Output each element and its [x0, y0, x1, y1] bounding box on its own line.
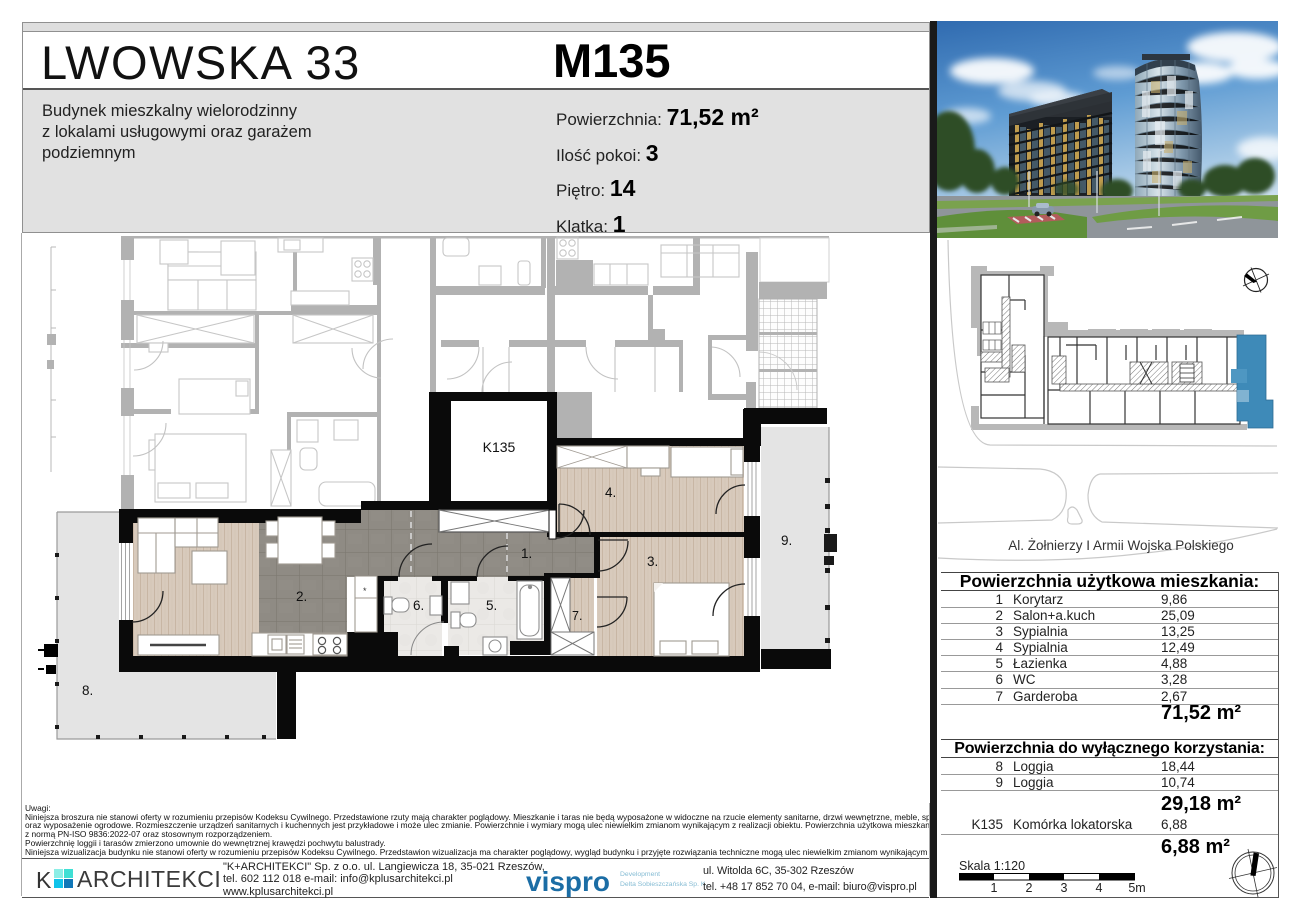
svg-text:3: 3 [1061, 881, 1068, 895]
svg-text:*: * [363, 586, 367, 596]
svg-text:5.: 5. [486, 598, 497, 613]
svg-text:2: 2 [1026, 881, 1033, 895]
svg-text:3.: 3. [647, 554, 658, 569]
svg-text:2.: 2. [296, 589, 307, 604]
svg-text:5m: 5m [1128, 881, 1145, 895]
svg-text:8.: 8. [82, 683, 93, 698]
svg-text:4: 4 [1096, 881, 1103, 895]
svg-text:1: 1 [991, 881, 998, 895]
svg-text:1.: 1. [521, 546, 532, 561]
svg-text:4.: 4. [605, 485, 616, 500]
svg-text:9.: 9. [781, 533, 792, 548]
svg-text:7.: 7. [572, 609, 582, 623]
svg-text:K135: K135 [483, 439, 516, 455]
svg-text:Al. Żołnierzy I Armii Wojska P: Al. Żołnierzy I Armii Wojska Polskiego [1008, 538, 1234, 553]
svg-text:6.: 6. [413, 598, 424, 613]
